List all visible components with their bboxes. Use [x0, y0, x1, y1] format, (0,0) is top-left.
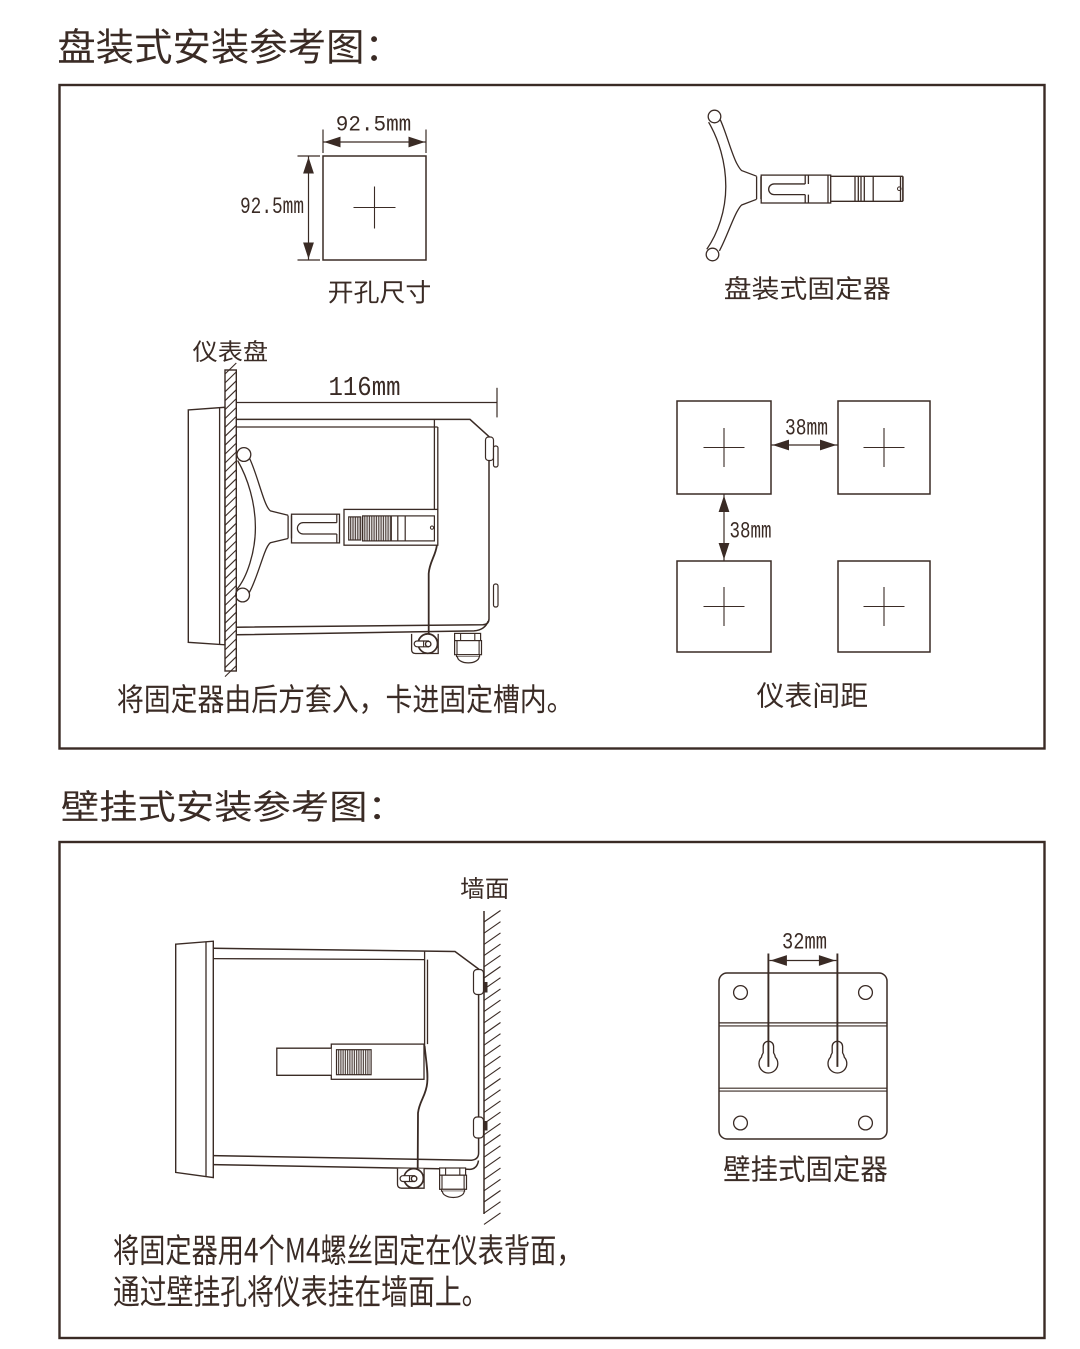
svg-text:32mm: 32mm [782, 930, 827, 956]
svg-text:116mm: 116mm [329, 374, 401, 404]
svg-text:38mm: 38mm [785, 416, 828, 442]
svg-text:38mm: 38mm [730, 519, 772, 545]
svg-text:92.5mm: 92.5mm [240, 194, 304, 220]
svg-text:92.5mm: 92.5mm [336, 112, 412, 138]
